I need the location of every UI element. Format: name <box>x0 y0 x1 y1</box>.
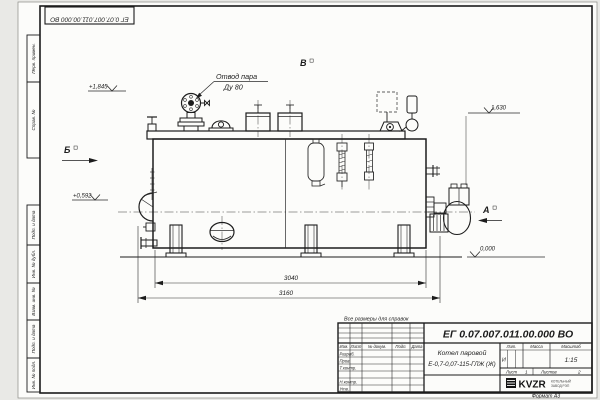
row-tkontr: Т.контр. <box>340 366 357 371</box>
lit-header: Лит. <box>506 344 517 349</box>
stamp-label: Инв. № подл. <box>31 361 36 390</box>
sheet-value: 1 <box>525 370 528 375</box>
product-name-line2: Е-0,7-0,07-115-ГЛЖ (Ж) <box>428 361 495 368</box>
kvzr-logo-text: KVZR <box>519 380 547 391</box>
reference-note: Все размеры для справок <box>344 317 409 323</box>
stamp-label: Подп. и дата <box>31 324 36 353</box>
col-dokum: № докум. <box>368 344 386 349</box>
lit-value: И <box>502 358 506 364</box>
col-podp: Подп. <box>395 344 406 349</box>
sheets-value: 2 <box>577 370 581 375</box>
row-nkontr: Н.контр. <box>340 380 358 385</box>
col-izm: Изм. <box>340 344 349 349</box>
format-label: Формат А3 <box>532 394 560 400</box>
col-list: Лист <box>350 344 362 349</box>
sheet-label: Лист <box>505 370 517 375</box>
company-tagline-line1: КОТЕЛЬНЫЙ <box>551 380 572 384</box>
elevation-value: +0,592 <box>73 194 92 200</box>
row-utv: Утв. <box>340 387 350 392</box>
doc-number-rotated: ЕГ 0.07.007.011.00.000 ВО <box>50 16 129 23</box>
row-razrab: Разраб. <box>340 352 355 357</box>
callout-text-line2: Ду 80 <box>223 83 243 92</box>
col-data: Дата <box>410 344 423 349</box>
company-tagline-line2: ЗАВОД РЭП <box>551 384 570 388</box>
stamp-label: Инв. № дубл. <box>31 250 36 278</box>
product-name-line1: Котел паровой <box>438 349 487 357</box>
view-letter: В <box>300 58 307 68</box>
dimension-value: 3160 <box>279 290 294 297</box>
doc-number: ЕГ 0.07.007.011.00.000 ВО <box>443 329 573 341</box>
mass-header: Масса <box>530 344 543 349</box>
view-letter: А <box>482 205 490 215</box>
callout-text-line1: Отвод пара <box>216 72 257 81</box>
stamp-label: Подп. и дата <box>31 210 36 239</box>
stamp-label: Перв. примен. <box>31 43 36 74</box>
sheets-label: Листов <box>540 370 557 375</box>
elevation-value: +1,845 <box>89 85 108 91</box>
drawing-sheet: Перв. примен. Справ. № Подп. и дата Инв.… <box>0 0 600 400</box>
scale-header: Масштаб <box>561 344 581 349</box>
dimension-value: 3040 <box>284 275 299 282</box>
scale-value: 1:15 <box>565 357 578 364</box>
view-letter: Б <box>64 145 71 155</box>
elevation-value: 0,000 <box>480 247 496 253</box>
stamp-label: Взам. инв. № <box>31 287 36 315</box>
row-prov: Пров. <box>340 359 351 364</box>
stamp-label: Справ. № <box>31 110 36 131</box>
